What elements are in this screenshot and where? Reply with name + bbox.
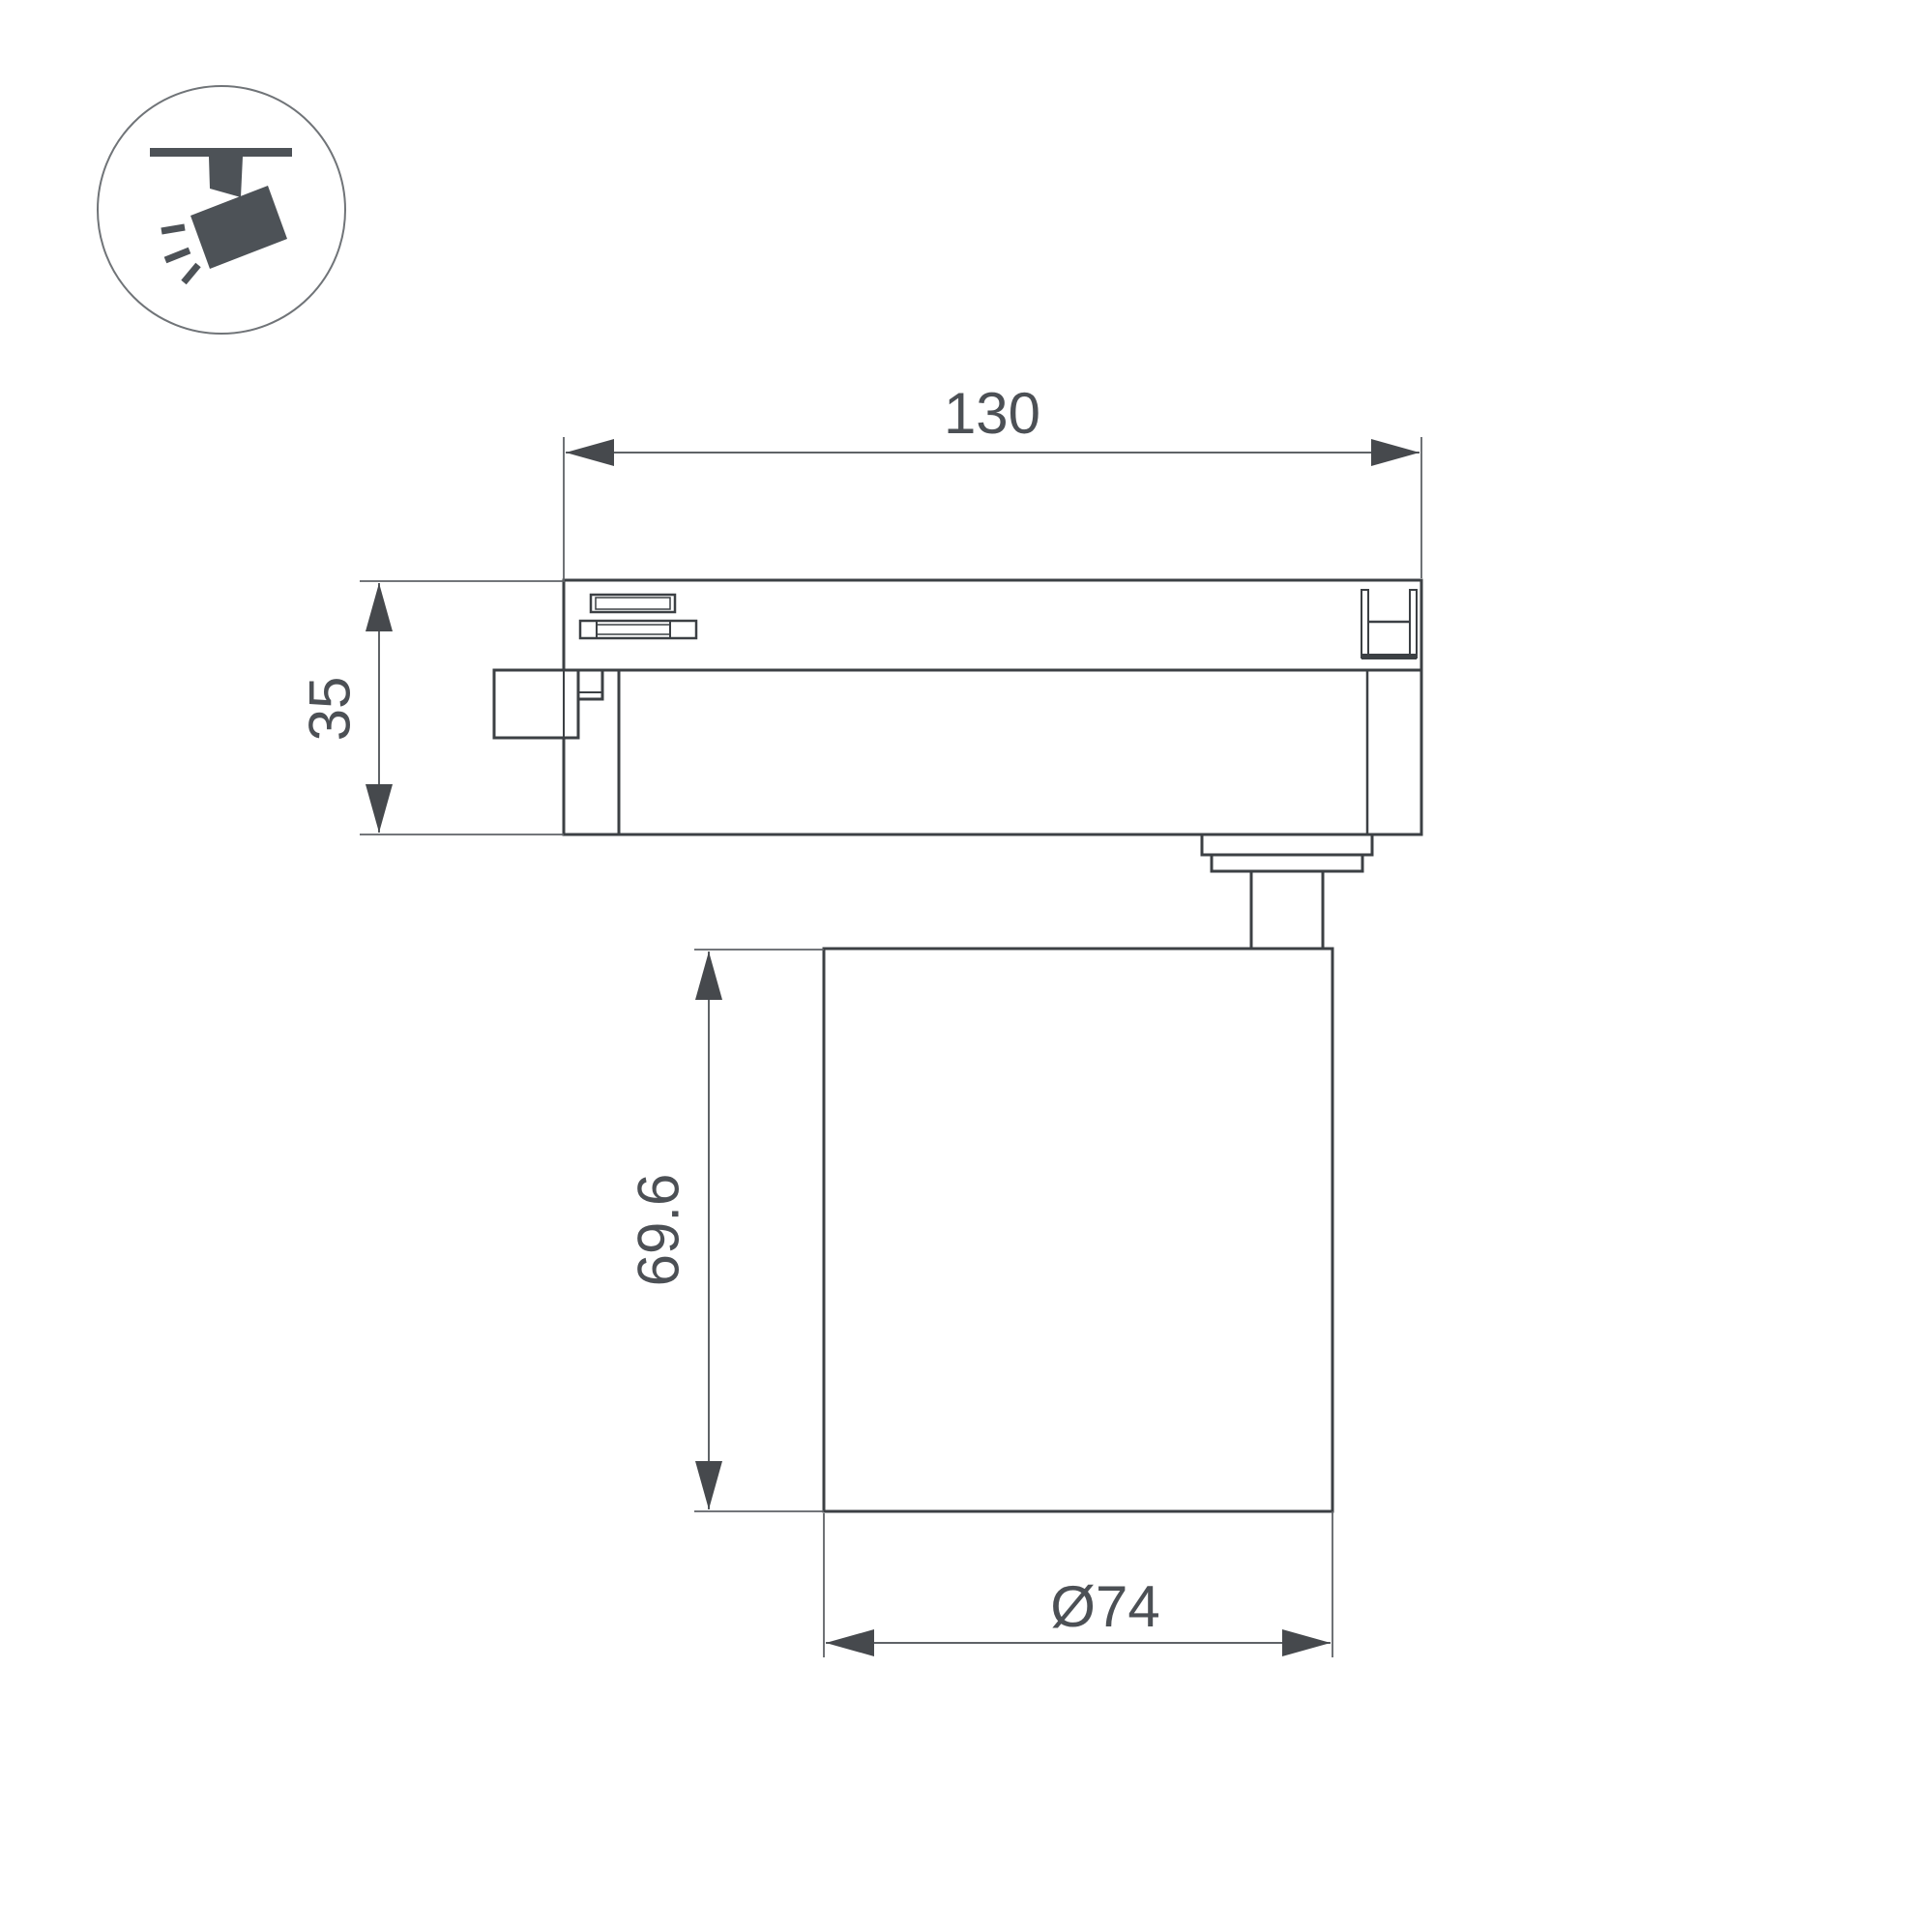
lamp-assembly xyxy=(824,834,1372,1511)
dimension-track-length: 130 xyxy=(564,381,1421,580)
arrowhead-69-bottom xyxy=(695,1461,722,1509)
dimension-label-body-diameter: Ø74 xyxy=(1050,1574,1159,1639)
dimension-label-body-height: 69.6 xyxy=(627,1174,691,1287)
dimension-label-track-length: 130 xyxy=(944,381,1040,446)
arrowhead-35-bottom xyxy=(366,784,393,833)
lamp-body xyxy=(824,949,1332,1511)
technical-drawing-page: 130 35 69.6 Ø74 xyxy=(0,0,1932,1932)
housing-outline xyxy=(564,580,1421,834)
arrowhead-74-right xyxy=(1282,1629,1331,1656)
lock-knob xyxy=(494,670,578,738)
track-adapter-housing xyxy=(494,580,1421,834)
icon-light-ray-1 xyxy=(161,227,185,231)
lamp-stem xyxy=(1251,871,1323,949)
icon-ceiling-track-bar xyxy=(150,148,292,157)
swivel-flange-lower xyxy=(1212,855,1362,871)
track-spotlight-icon xyxy=(98,86,345,334)
swivel-flange-upper xyxy=(1202,834,1372,855)
arrowhead-35-top xyxy=(366,583,393,631)
arrowhead-130-right xyxy=(1371,439,1420,466)
arrowhead-130-left xyxy=(566,439,614,466)
arrowhead-69-top xyxy=(695,951,722,1000)
track-light-dimension-drawing: 130 35 69.6 Ø74 xyxy=(0,0,1932,1932)
dimension-body-height: 69.6 xyxy=(627,950,825,1511)
arrowhead-74-left xyxy=(826,1629,874,1656)
dimension-label-track-height: 35 xyxy=(298,677,363,742)
dimension-body-diameter: Ø74 xyxy=(824,1511,1332,1657)
